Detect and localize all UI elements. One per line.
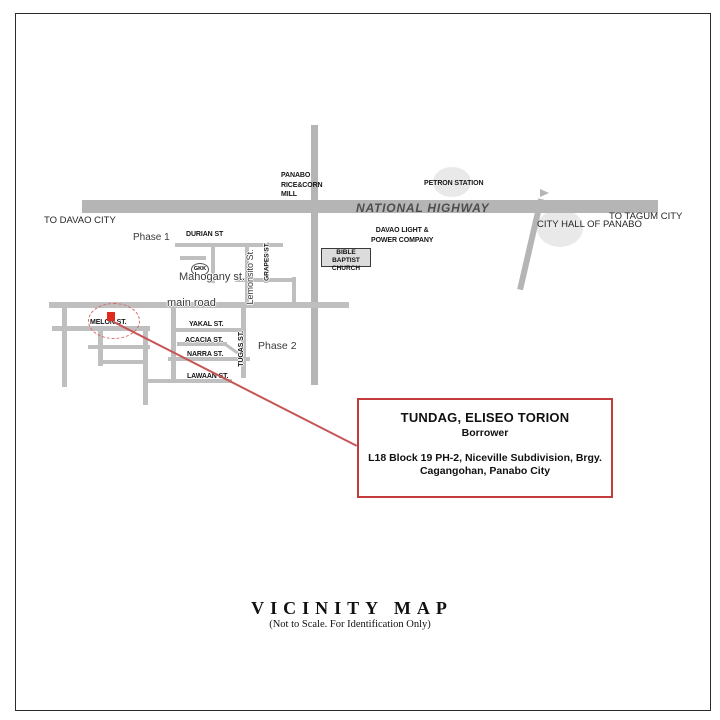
borrower-address-line1: L18 Block 19 PH-2, Niceville Subdivision… xyxy=(359,452,611,464)
road-phase1-vertical-2 xyxy=(292,277,296,305)
location-marker xyxy=(107,312,115,321)
road-phase2-vertical xyxy=(171,305,176,383)
vicinity-map-page: TO DAVAO CITY NATIONAL HIGHWAY TO TAGUM … xyxy=(0,0,720,720)
road-arrow-icon xyxy=(540,189,549,197)
borrower-role: Borrower xyxy=(359,427,611,439)
map-title: VICINITY MAP xyxy=(0,598,704,619)
petron-station-label: PETRON STATION xyxy=(424,180,483,188)
church-line2: CHURCH xyxy=(322,265,370,273)
acacia-st-label: ACACIA ST. xyxy=(185,337,223,345)
durian-st-label: DURIAN ST xyxy=(186,231,223,239)
mahogany-st-label: Mahogany st. xyxy=(179,271,245,283)
road-left-horizontal-1 xyxy=(88,345,150,349)
road-rice-mill-vertical xyxy=(311,125,318,385)
yakal-st-label: YAKAL ST. xyxy=(189,321,224,329)
road-left-vertical-1 xyxy=(62,303,67,387)
city-hall-label: CITY HALL OF PANABO xyxy=(537,220,642,230)
rice-mill-label: PANABO RICE&CORN MILL xyxy=(281,171,323,200)
church-line1: BIBLE BAPTIST xyxy=(322,249,370,265)
rice-mill-line3: MILL xyxy=(281,190,323,200)
road-left-horizontal-2 xyxy=(100,360,145,364)
phase1-label: Phase 1 xyxy=(133,232,170,243)
rice-mill-line2: RICE&CORN xyxy=(281,181,323,191)
narra-st-label: NARRA ST. xyxy=(187,351,223,359)
power-company-line1: DAVAO LIGHT & xyxy=(371,226,433,236)
lemonsito-st-label: Lemonsito St. xyxy=(246,247,256,307)
main-road-label: main road xyxy=(167,297,216,309)
rice-mill-line1: PANABO xyxy=(281,171,323,181)
power-company-line2: POWER COMPANY xyxy=(371,236,433,246)
grapes-st-label: GRAPES ST. xyxy=(263,242,270,282)
to-davao-city-label: TO DAVAO CITY xyxy=(44,216,116,226)
tugas-st-label: TUGAS ST. xyxy=(238,324,246,374)
power-company-label: DAVAO LIGHT & POWER COMPANY xyxy=(371,226,433,245)
map-subtitle: (Not to Scale. For Identification Only) xyxy=(0,619,700,630)
phase2-label: Phase 2 xyxy=(258,341,297,353)
road-phase1-horizontal xyxy=(180,256,206,260)
church-label-box: BIBLE BAPTIST CHURCH xyxy=(321,248,371,267)
borrower-name: TUNDAG, ELISEO TORION xyxy=(359,410,611,425)
national-highway-label: NATIONAL HIGHWAY xyxy=(356,201,489,215)
borrower-info-box: TUNDAG, ELISEO TORION Borrower L18 Block… xyxy=(357,398,613,498)
borrower-address-line2: Cagangohan, Panabo City xyxy=(359,465,611,477)
